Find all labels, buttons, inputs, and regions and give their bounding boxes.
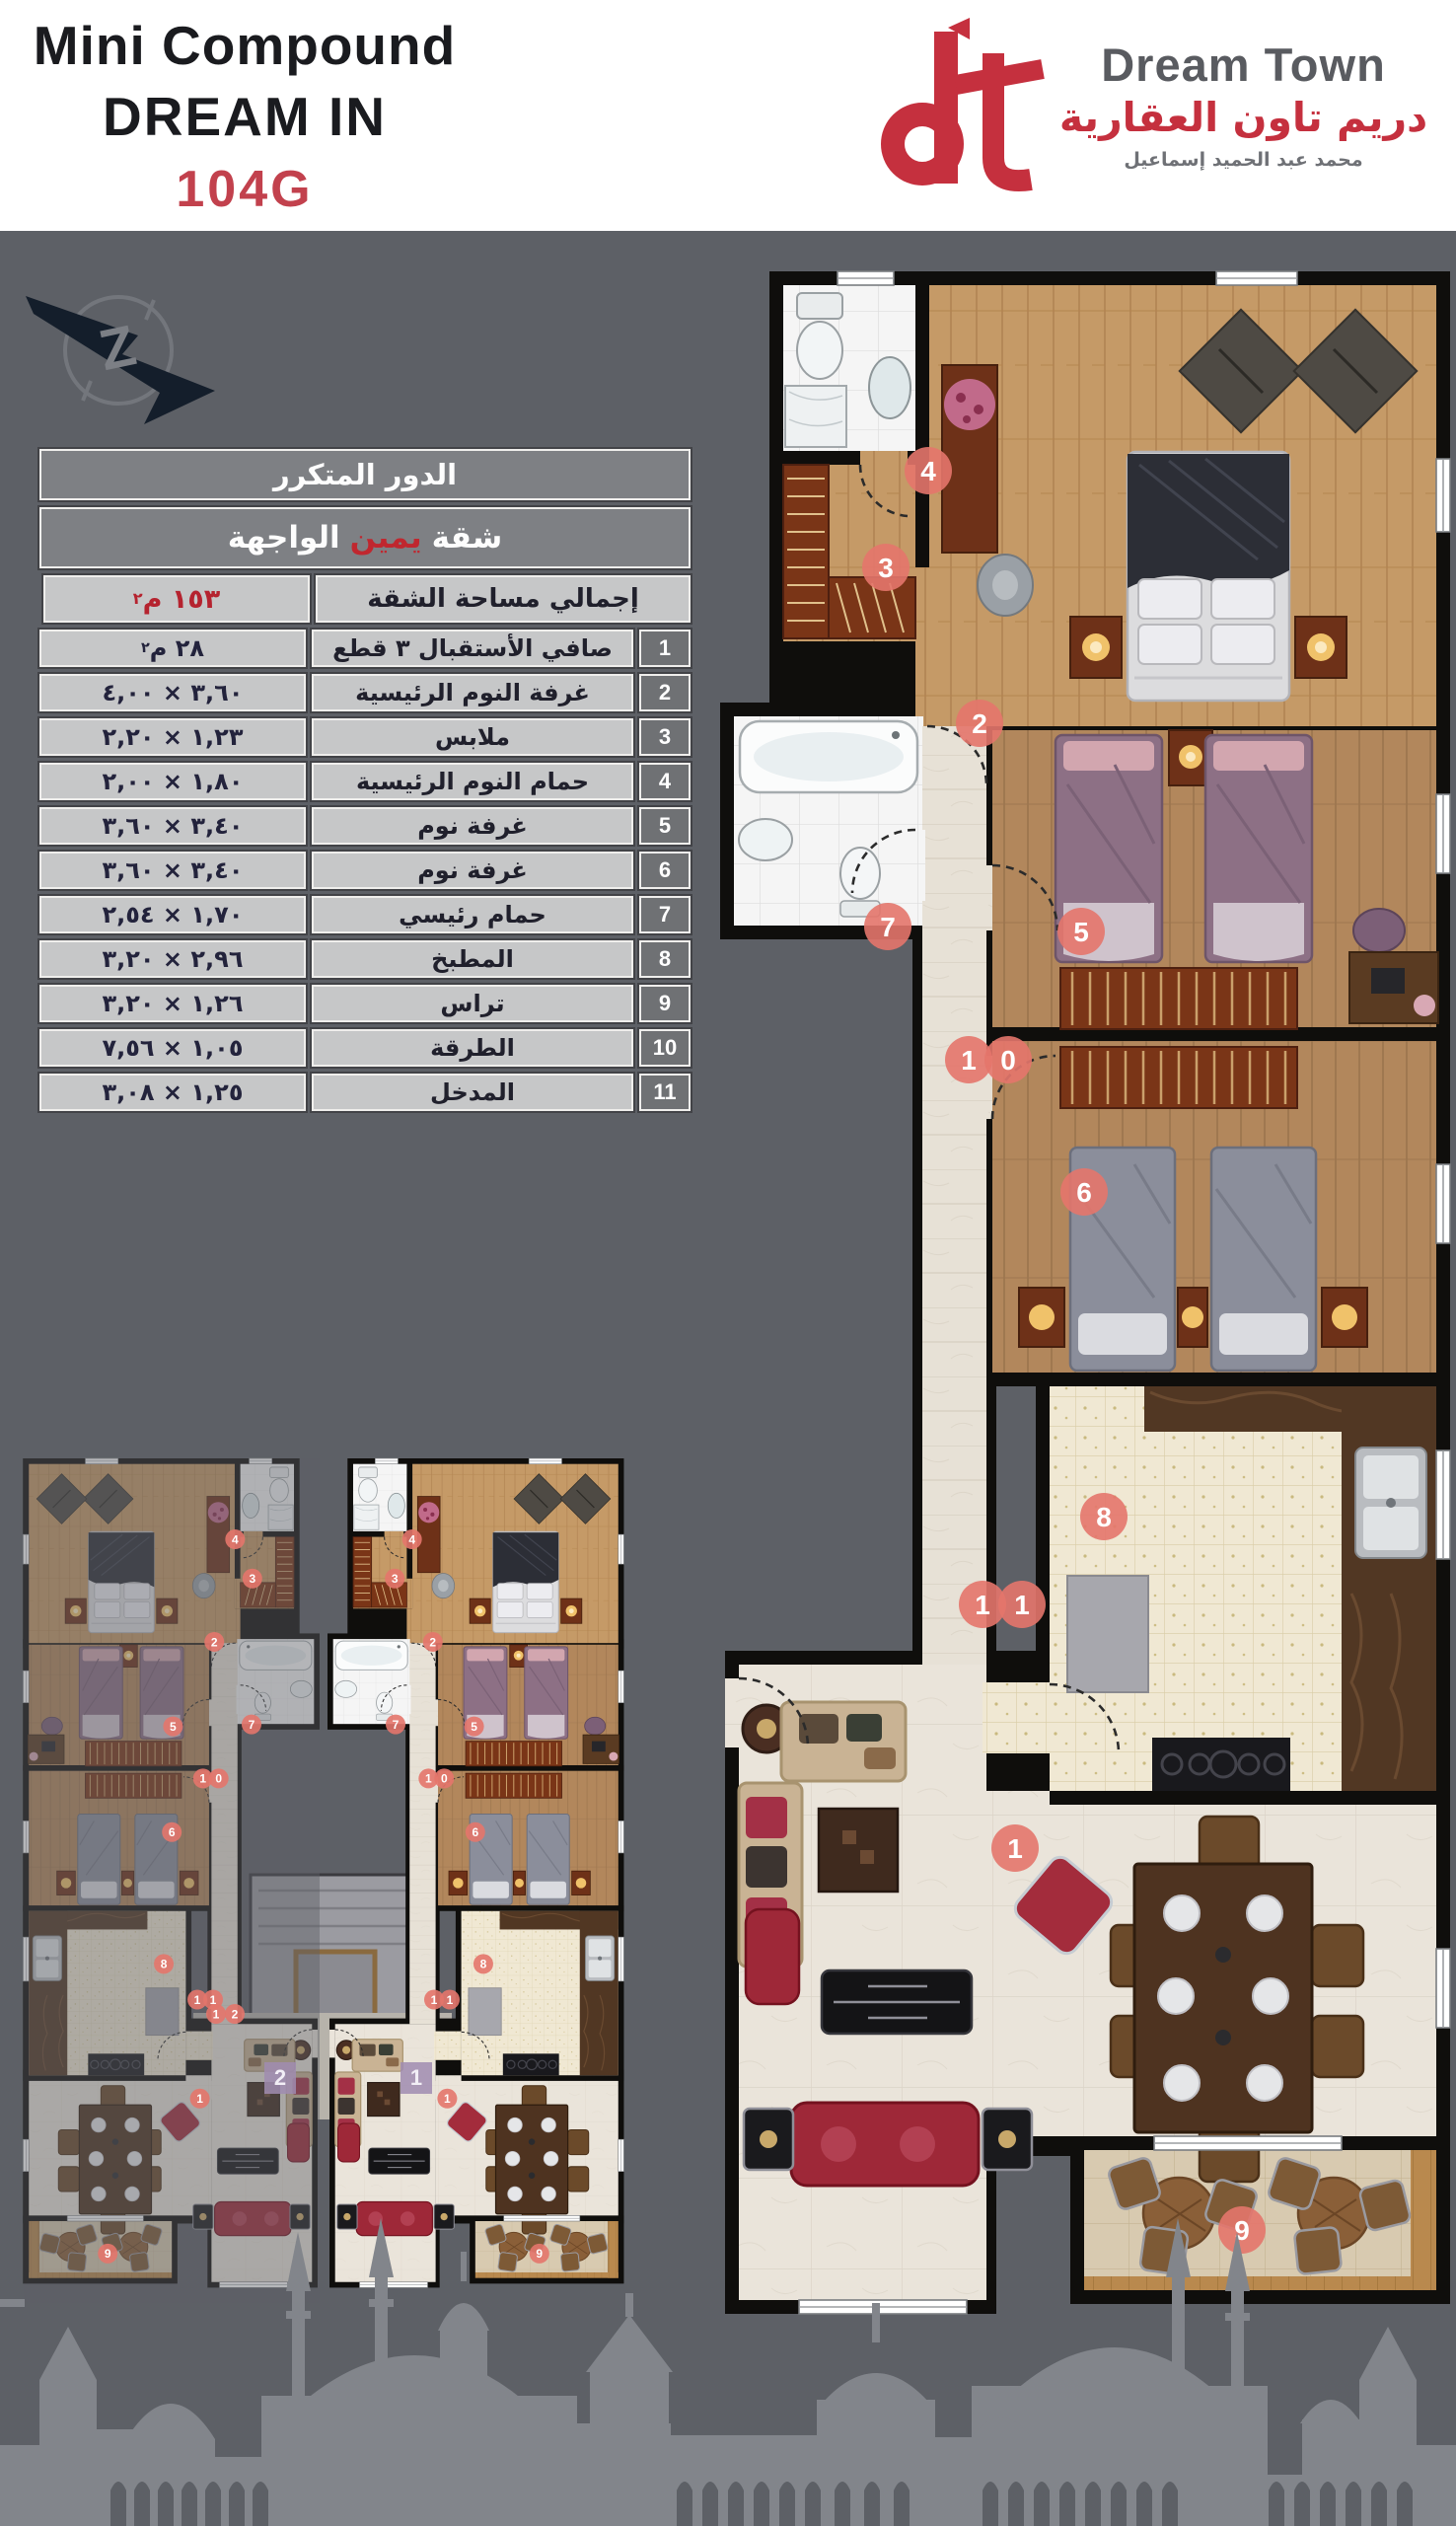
skyline-arch xyxy=(229,2482,245,2526)
room-badge-label: 4 xyxy=(408,1532,415,1546)
unit-left-label: 2 xyxy=(274,2065,286,2090)
table-row: 6غرفة نوم٣,٤٠ × ٣,٦٠ xyxy=(39,852,691,889)
room-badge-label: 3 xyxy=(392,1572,399,1586)
room-badge-label: 1 xyxy=(975,1590,990,1620)
total-value: ١٥٣ م٢ xyxy=(43,575,310,623)
row-number: 5 xyxy=(639,807,691,845)
page-graphics: Z 1234567891011 112233445566778899101011… xyxy=(0,0,1456,2526)
room-badge-label: 9 xyxy=(536,2247,543,2261)
room-badge-label: 7 xyxy=(393,1718,400,1732)
skyline-arch xyxy=(1085,2482,1101,2526)
room-name: المدخل xyxy=(312,1074,633,1111)
table-row: 4حمام النوم الرئيسية١,٨٠ × ٢,٠٠ xyxy=(39,763,691,800)
room-badge-label: 1 xyxy=(431,1993,438,2007)
room-badge-label: 6 xyxy=(169,1825,176,1839)
table-row: 10الطرقة١,٠٥ × ٧,٥٦ xyxy=(39,1029,691,1067)
row-number: 8 xyxy=(639,940,691,978)
row-number: 10 xyxy=(639,1029,691,1067)
main-floor-plan: 1234567891011 xyxy=(720,271,1450,2314)
building-inset-plan: 1122334455667788991010111112 2 1 xyxy=(24,1458,624,2303)
skyline-arch xyxy=(158,2482,174,2526)
skyline-arch xyxy=(1320,2482,1336,2526)
table-row: 1صافي الأستقبال ٣ قطع٢٨ م٢ xyxy=(39,630,691,667)
table-row: 3ملابس١,٢٣ × ٢,٢٠ xyxy=(39,718,691,756)
room-badge-label: 0 xyxy=(215,1772,222,1786)
room-badge-label: 1 xyxy=(961,1045,977,1076)
table-row: 11المدخل١,٢٥ × ٣,٠٨ xyxy=(39,1074,691,1111)
room-badge-label: 0 xyxy=(441,1772,448,1786)
skyline-arch xyxy=(1346,2482,1361,2526)
room-badge-label: 8 xyxy=(480,1958,487,1971)
skyline-arch xyxy=(1397,2482,1413,2526)
inset-unit-right xyxy=(328,1458,623,2287)
row-number: 4 xyxy=(639,763,691,800)
title-line1: Mini Compound xyxy=(28,14,462,77)
brand-owner-ar: محمد عبد الحميد إسماعيل xyxy=(1054,149,1433,171)
table-row: 9تراس١,٢٦ × ٣,٢٠ xyxy=(39,985,691,1022)
unit-title-highlight: يمين xyxy=(350,520,422,556)
room-badge-label: 3 xyxy=(878,553,894,583)
room-name: المطبخ xyxy=(312,940,633,978)
room-badge-label: 5 xyxy=(471,1720,477,1734)
skyline-arch xyxy=(677,2482,692,2526)
room-badge-label: 3 xyxy=(249,1572,255,1586)
room-badge-label: 8 xyxy=(1096,1502,1112,1532)
room-badge-label: 1 xyxy=(444,2092,451,2106)
room-name: حمام رئيسي xyxy=(312,896,633,933)
row-number: 9 xyxy=(639,985,691,1022)
room-dimensions: ٢,٩٦ × ٣,٢٠ xyxy=(39,940,306,978)
room-badge-label: 5 xyxy=(1073,917,1089,947)
room-dimensions: ٣,٤٠ × ٣,٦٠ xyxy=(39,807,306,845)
room-badge-label: 2 xyxy=(211,1635,218,1649)
skyline-arch xyxy=(253,2482,268,2526)
unit-title-prefix: شقة xyxy=(432,520,503,556)
room-badge-label: 1 xyxy=(447,1993,454,2007)
room-name: غرفة نوم xyxy=(312,807,633,845)
room-badge-label: 1 xyxy=(1007,1833,1023,1864)
room-badge-label: 1 xyxy=(194,1993,201,2007)
project-title: Mini Compound DREAM IN 104G xyxy=(28,14,462,219)
skyline-arch xyxy=(779,2482,795,2526)
room-dimensions: ١,٢٣ × ٢,٢٠ xyxy=(39,718,306,756)
skyline-arch xyxy=(1111,2482,1127,2526)
table-floor-title: الدور المتكرر xyxy=(39,449,691,500)
room-name: صافي الأستقبال ٣ قطع xyxy=(312,630,633,667)
room-badge-label: 0 xyxy=(1000,1045,1016,1076)
table-total-row: إجمالي مساحة الشقة ١٥٣ م٢ xyxy=(39,575,691,623)
title-line2: DREAM IN xyxy=(28,85,462,148)
room-dimensions: ٣,٦٠ × ٤,٠٠ xyxy=(39,674,306,711)
table-row: 2غرفة النوم الرئيسية٣,٦٠ × ٤,٠٠ xyxy=(39,674,691,711)
room-dimensions: ١,٨٠ × ٢,٠٠ xyxy=(39,763,306,800)
unit-right-label: 1 xyxy=(410,2065,422,2090)
brand-name-ar: دريم تاون العقارية xyxy=(1054,94,1433,141)
skyline-arch xyxy=(205,2482,221,2526)
skyline-arch xyxy=(864,2482,880,2526)
inset-left-dim-overlay xyxy=(24,1458,320,2303)
room-badge-label: 1 xyxy=(196,2092,203,2106)
unit-code: 104G xyxy=(28,160,462,219)
room-dimensions: ١,٧٠ × ٢,٥٤ xyxy=(39,896,306,933)
table-row: 8المطبخ٢,٩٦ × ٣,٢٠ xyxy=(39,940,691,978)
skyline-arch xyxy=(983,2482,998,2526)
skyline-arch xyxy=(1371,2482,1387,2526)
room-name: الطرقة xyxy=(312,1029,633,1067)
unit-title-suffix: الواجهة xyxy=(228,520,340,556)
area-table: الدور المتكرر شقة يمين الواجهة إجمالي مس… xyxy=(39,449,691,1118)
room-name: حمام النوم الرئيسية xyxy=(312,763,633,800)
dream-town-logo: Dream Town دريم تاون العقارية محمد عبد ا… xyxy=(871,8,1438,225)
room-badge-label: 2 xyxy=(972,708,987,739)
skyline-arch xyxy=(134,2482,150,2526)
room-badge-label: 6 xyxy=(472,1825,478,1839)
room-badge-label: 8 xyxy=(161,1958,168,1971)
skyline-arch xyxy=(702,2482,718,2526)
table-row: 7حمام رئيسي١,٧٠ × ٢,٥٤ xyxy=(39,896,691,933)
compass-letter: Z xyxy=(94,313,141,383)
skyline-arch xyxy=(1136,2482,1152,2526)
row-number: 1 xyxy=(639,630,691,667)
skyline-arch xyxy=(728,2482,744,2526)
skyline-arch xyxy=(835,2482,850,2526)
room-dimensions: ١,٠٥ × ٧,٥٦ xyxy=(39,1029,306,1067)
skyline-arch xyxy=(1034,2482,1050,2526)
room-dimensions: ٢٨ م٢ xyxy=(39,630,306,667)
skyline-arch xyxy=(754,2482,769,2526)
room-name: غرفة نوم xyxy=(312,852,633,889)
room-badge-label: 1 xyxy=(425,1772,432,1786)
north-compass-icon: Z xyxy=(26,296,215,424)
row-number: 3 xyxy=(639,718,691,756)
room-badge-label: 1 xyxy=(213,2007,220,2021)
room-badge-label: 7 xyxy=(249,1718,255,1732)
skyline-arch xyxy=(1059,2482,1075,2526)
room-badge-label: 4 xyxy=(920,456,936,486)
room-name: ملابس xyxy=(312,718,633,756)
room-dimensions: ٣,٤٠ × ٣,٦٠ xyxy=(39,852,306,889)
room-badge-label: 1 xyxy=(199,1772,206,1786)
room-badge-label: 1 xyxy=(1014,1590,1030,1620)
table-unit-title: شقة يمين الواجهة xyxy=(39,507,691,568)
skyline-arch xyxy=(1294,2482,1310,2526)
room-name: غرفة النوم الرئيسية xyxy=(312,674,633,711)
skyline-arch xyxy=(110,2482,126,2526)
header: Mini Compound DREAM IN 104G Dream Town د… xyxy=(0,0,1456,231)
room-badge-label: 2 xyxy=(232,2007,239,2021)
room-dimensions: ١,٢٥ × ٣,٠٨ xyxy=(39,1074,306,1111)
brand-name-en: Dream Town xyxy=(1054,37,1433,92)
dt-monogram-icon xyxy=(871,14,1049,221)
skyline-arch xyxy=(1162,2482,1178,2526)
total-label: إجمالي مساحة الشقة xyxy=(316,575,691,623)
skyline-arch xyxy=(1008,2482,1024,2526)
room-badge-label: 9 xyxy=(105,2247,111,2261)
skyline-arch xyxy=(894,2482,910,2526)
table-row: 5غرفة نوم٣,٤٠ × ٣,٦٠ xyxy=(39,807,691,845)
room-dimensions: ١,٢٦ × ٣,٢٠ xyxy=(39,985,306,1022)
skyline-arch xyxy=(805,2482,821,2526)
room-badge-label: 5 xyxy=(170,1720,177,1734)
row-number: 7 xyxy=(639,896,691,933)
skyline-arch xyxy=(182,2482,197,2526)
room-badge-label: 2 xyxy=(429,1635,436,1649)
row-number: 6 xyxy=(639,852,691,889)
row-number: 11 xyxy=(639,1074,691,1111)
room-badge-label: 6 xyxy=(1076,1177,1092,1208)
table-rows: 1صافي الأستقبال ٣ قطع٢٨ م٢2غرفة النوم ال… xyxy=(39,630,691,1111)
room-badge-label: 7 xyxy=(880,912,896,942)
row-number: 2 xyxy=(639,674,691,711)
room-name: تراس xyxy=(312,985,633,1022)
floorplan-poster: { "header": { "title_line1": "Mini Compo… xyxy=(0,0,1456,2526)
room-badge-label: 4 xyxy=(232,1532,239,1546)
skyline-arch xyxy=(1269,2482,1284,2526)
